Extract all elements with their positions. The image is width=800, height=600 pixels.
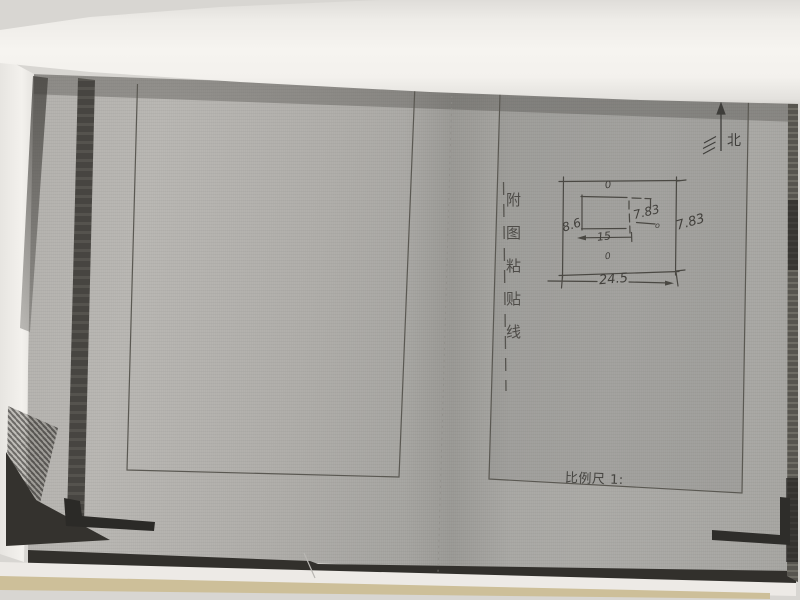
bottom-band-crease	[304, 553, 315, 578]
sketch-mark-bottom: 0	[604, 252, 611, 263]
sketch-mark-right: o	[655, 221, 660, 230]
printed-frame-left	[127, 84, 415, 477]
paste-line-caption: 附 图 粘 贴 线	[506, 193, 521, 340]
north-label: 北	[727, 130, 741, 150]
paper-crease-line	[438, 90, 452, 572]
paste-line-char: 粘	[506, 259, 521, 274]
paste-line-char: 附	[506, 193, 521, 208]
north-arrow-icon	[703, 104, 725, 155]
book-photo: 附 图 粘 贴 线 比例尺 1: 北 0 8.6 15 7.83 o 7.83 …	[0, 0, 800, 600]
sketch-width-total-label: 24.5	[598, 271, 628, 288]
sketch-width-inner-label: 15	[596, 229, 611, 243]
paste-line-char: 图	[506, 226, 521, 241]
paste-line-char: 线	[506, 325, 521, 340]
printed-frame-right-panel	[489, 94, 749, 493]
paste-line-char: 贴	[506, 292, 521, 307]
scale-label: 比例尺 1:	[565, 467, 624, 488]
sketch-mark-top: 0	[604, 180, 612, 192]
